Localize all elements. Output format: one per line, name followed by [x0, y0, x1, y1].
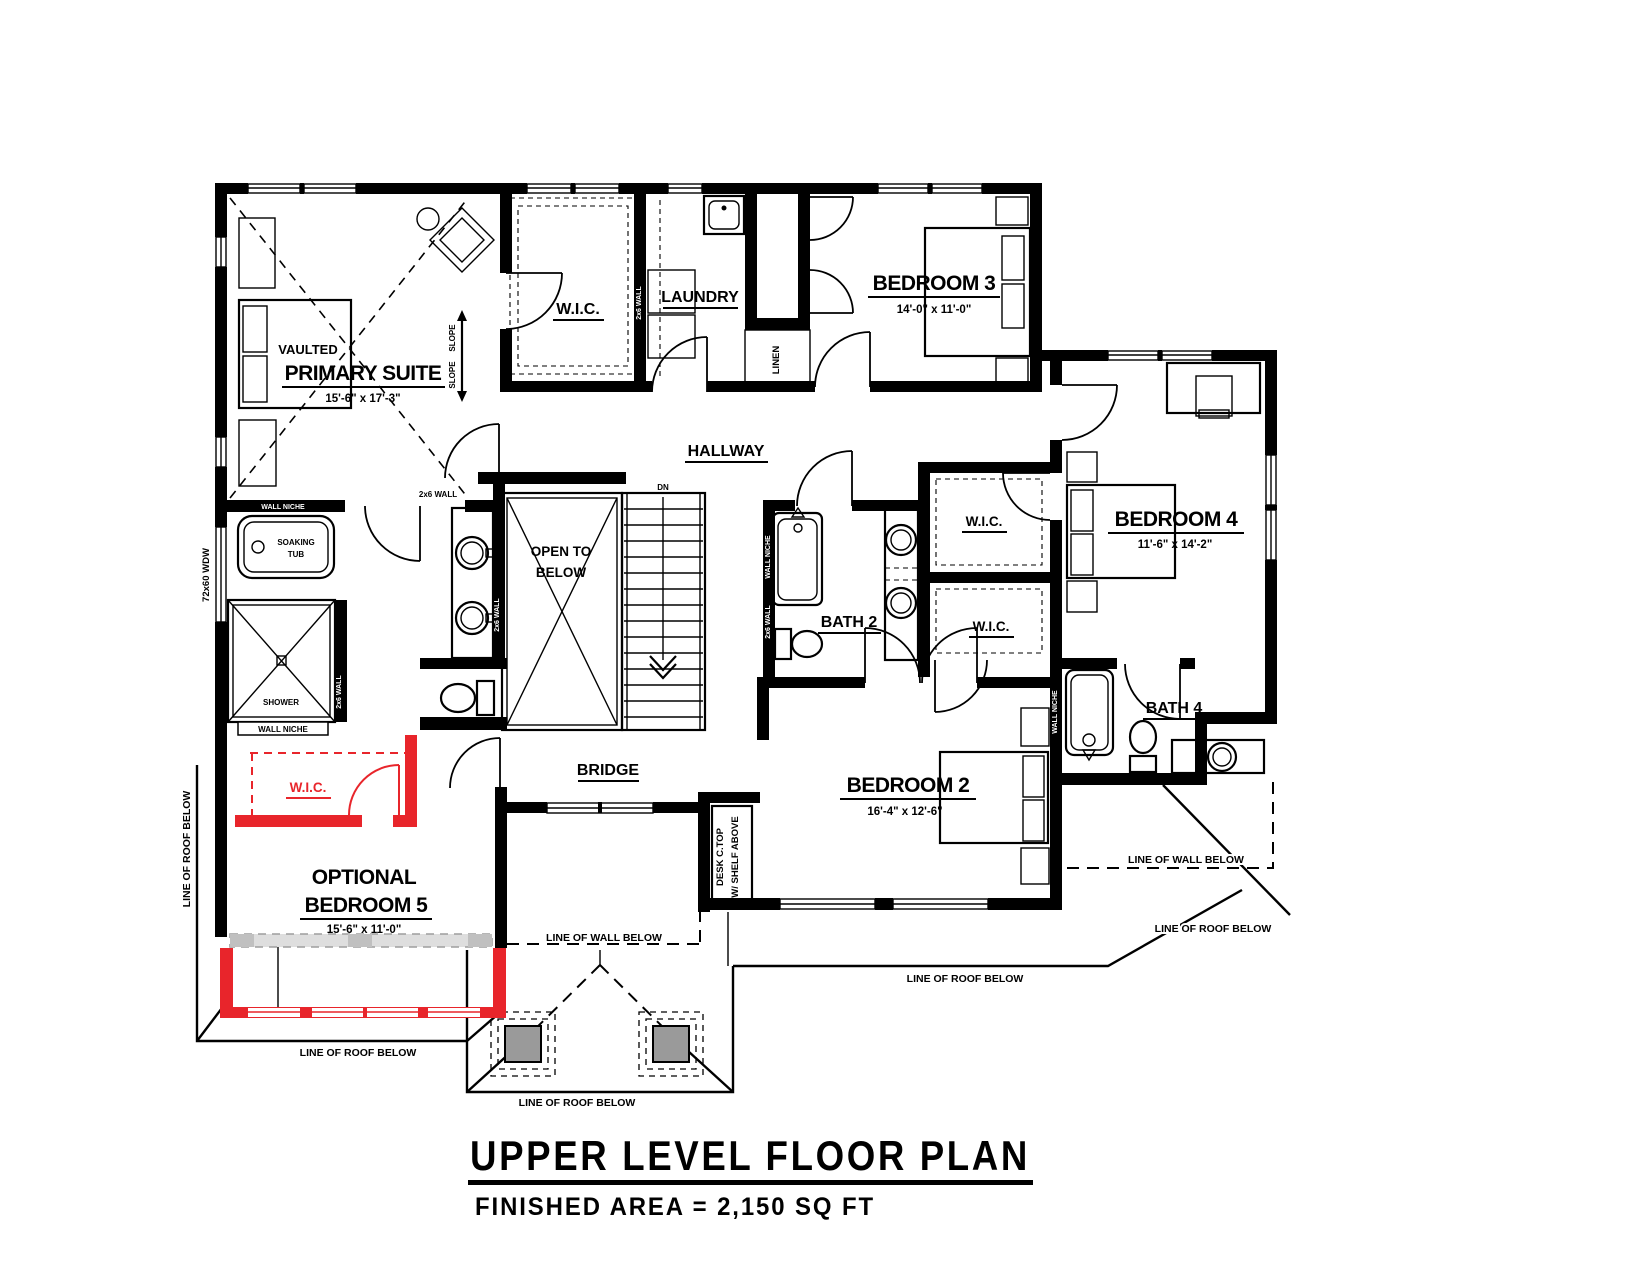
bath4-tub — [1066, 670, 1113, 760]
wic-bedroom4: W.I.C. — [936, 479, 1042, 565]
bath2-label: BATH 2 — [821, 614, 878, 631]
bath2-tub — [773, 508, 822, 605]
bridge: BRIDGE — [577, 762, 640, 781]
primary-suite-dims: 15'-6" x 17'-3" — [325, 393, 400, 405]
soaking-tub-label-1: SOAKING — [277, 538, 314, 547]
slope-arrow: SLOPE SLOPE — [448, 310, 467, 402]
soaking-tub: SOAKING TUB — [238, 516, 334, 578]
desk-label-2: W/ SHELF ABOVE — [730, 816, 741, 897]
laundry-room: LAUNDRY LINEN — [648, 196, 782, 378]
wall-niche-strip: WALL NICHE — [238, 722, 328, 735]
optional-wic-label: W.I.C. — [290, 780, 327, 795]
shower: SHOWER 2x6 WALL — [228, 600, 343, 722]
bath2-toilet — [775, 629, 822, 659]
open-to-below-label-1: OPEN TO — [531, 544, 592, 559]
wall-niche-label-bedroom2: WALL NICHE — [1052, 690, 1059, 734]
window-72x60-label: 72x60 WDW — [201, 548, 212, 602]
optional-bedroom5: OPTIONAL BEDROOM 5 15'-6" x 11'-0" — [300, 866, 432, 936]
title-block: UPPER LEVEL FLOOR PLAN FINISHED AREA = 2… — [468, 1132, 1033, 1221]
bath4-vanity — [1172, 740, 1264, 773]
wall-2x6-label-openbelow: 2x6 WALL — [494, 598, 501, 632]
master-toilet — [441, 681, 494, 715]
bedroom4-label: BEDROOM 4 — [1115, 508, 1239, 531]
wall-2x6-label-bathtop: 2x6 WALL — [419, 490, 457, 499]
primary-wic-label: W.I.C. — [556, 301, 600, 318]
line-of-wall-below-right-label: LINE OF WALL BELOW — [1128, 854, 1244, 866]
bedroom4-dims: 11'-6" x 14'-2" — [1138, 539, 1213, 551]
plan-area: FINISHED AREA = 2,150 SQ FT — [475, 1193, 875, 1221]
primary-suite-label: PRIMARY SUITE — [285, 362, 442, 385]
line-of-roof-below-cr-label: LINE OF ROOF BELOW — [907, 973, 1024, 985]
bridge-label: BRIDGE — [577, 762, 640, 779]
desk-alcove: DESK C.TOP W/ SHELF ABOVE — [712, 806, 752, 904]
bridge-window — [547, 802, 653, 813]
hallway-label: HALLWAY — [688, 443, 765, 460]
bedroom5-dims: 15'-6" x 11'-0" — [327, 924, 402, 936]
laundry-sink — [704, 196, 744, 234]
bath2-vanity — [885, 506, 918, 660]
primary-vaulted-label: VAULTED — [278, 342, 337, 357]
laundry-label: LAUNDRY — [661, 289, 739, 306]
wic-bedroom2-label: W.I.C. — [973, 619, 1010, 634]
floor-plan-page: LINE OF ROOF BELOW LINE OF ROOF BELOW LI… — [0, 0, 1650, 1275]
bath4-toilet — [1130, 721, 1156, 772]
wall-niche-label-bath2: WALL NICHE — [765, 535, 772, 579]
bedroom5-tag: OPTIONAL — [312, 866, 417, 889]
wic-bedroom4-label: W.I.C. — [966, 514, 1003, 529]
roof-labels: LINE OF ROOF BELOW LINE OF ROOF BELOW LI… — [181, 791, 1271, 1109]
wall-2x6-label-wic: 2x6 WALL — [636, 286, 643, 320]
floor-plan-drawing: LINE OF ROOF BELOW LINE OF ROOF BELOW LI… — [0, 0, 1650, 1275]
wall-niche-label-top: WALL NICHE — [261, 504, 305, 511]
bedroom2-label: BEDROOM 2 — [847, 774, 970, 797]
primary-suite: SLOPE SLOPE VAULTED PRIMARY SUITE 15'-6"… — [230, 198, 494, 498]
master-bath: WALL NICHE 2x6 WALL 72x60 WDW SOAKING TU… — [201, 490, 494, 735]
hallway: HALLWAY — [685, 443, 768, 462]
desk-label-1: DESK C.TOP — [715, 827, 726, 886]
line-of-wall-below-center-label: LINE OF WALL BELOW — [546, 932, 662, 944]
line-of-roof-below-bl-label: LINE OF ROOF BELOW — [300, 1047, 417, 1059]
shower-label: SHOWER — [263, 698, 299, 707]
open-to-below-label-2: BELOW — [536, 565, 587, 580]
wic-bedroom2: W.I.C. — [936, 589, 1042, 653]
bedroom3-dims: 14'-0" x 11'-0" — [897, 304, 972, 316]
bedroom3: BEDROOM 3 14'-0" x 11'-0" — [868, 197, 1030, 384]
open-to-below: OPEN TO BELOW 2x6 WALL — [494, 493, 622, 730]
stairs-dn-label: DN — [657, 483, 669, 492]
bedroom3-label: BEDROOM 3 — [873, 272, 996, 295]
soaking-tub-label-2: TUB — [288, 550, 305, 559]
desk-bedroom4 — [1167, 363, 1260, 418]
wall-2x6-label-shower: 2x6 WALL — [336, 675, 343, 709]
line-of-roof-below-left-label: LINE OF ROOF BELOW — [181, 791, 193, 908]
plan-title: UPPER LEVEL FLOOR PLAN — [470, 1132, 1030, 1179]
line-of-roof-below-center-label: LINE OF ROOF BELOW — [519, 1097, 636, 1109]
bedroom5-label: BEDROOM 5 — [305, 894, 429, 917]
wall-niche-label-shower: WALL NICHE — [258, 725, 308, 734]
wall-2x6-label-bath2: 2x6 WALL — [765, 605, 772, 639]
bedroom2-dims: 16'-4" x 12'-6" — [867, 806, 942, 818]
linen-label: LINEN — [771, 346, 782, 375]
slope-label-2: SLOPE — [448, 361, 457, 389]
stairs: DN — [622, 483, 705, 730]
master-vanity — [452, 508, 493, 658]
primary-wic: W.I.C. 2x6 WALL — [510, 198, 643, 374]
bedroom4: BEDROOM 4 11'-6" x 14'-2" — [1067, 363, 1260, 612]
chair-and-table — [417, 208, 494, 272]
line-of-roof-below-right-label: LINE OF ROOF BELOW — [1155, 923, 1272, 935]
bath4-label: BATH 4 — [1146, 700, 1203, 717]
slope-label-1: SLOPE — [448, 324, 457, 352]
